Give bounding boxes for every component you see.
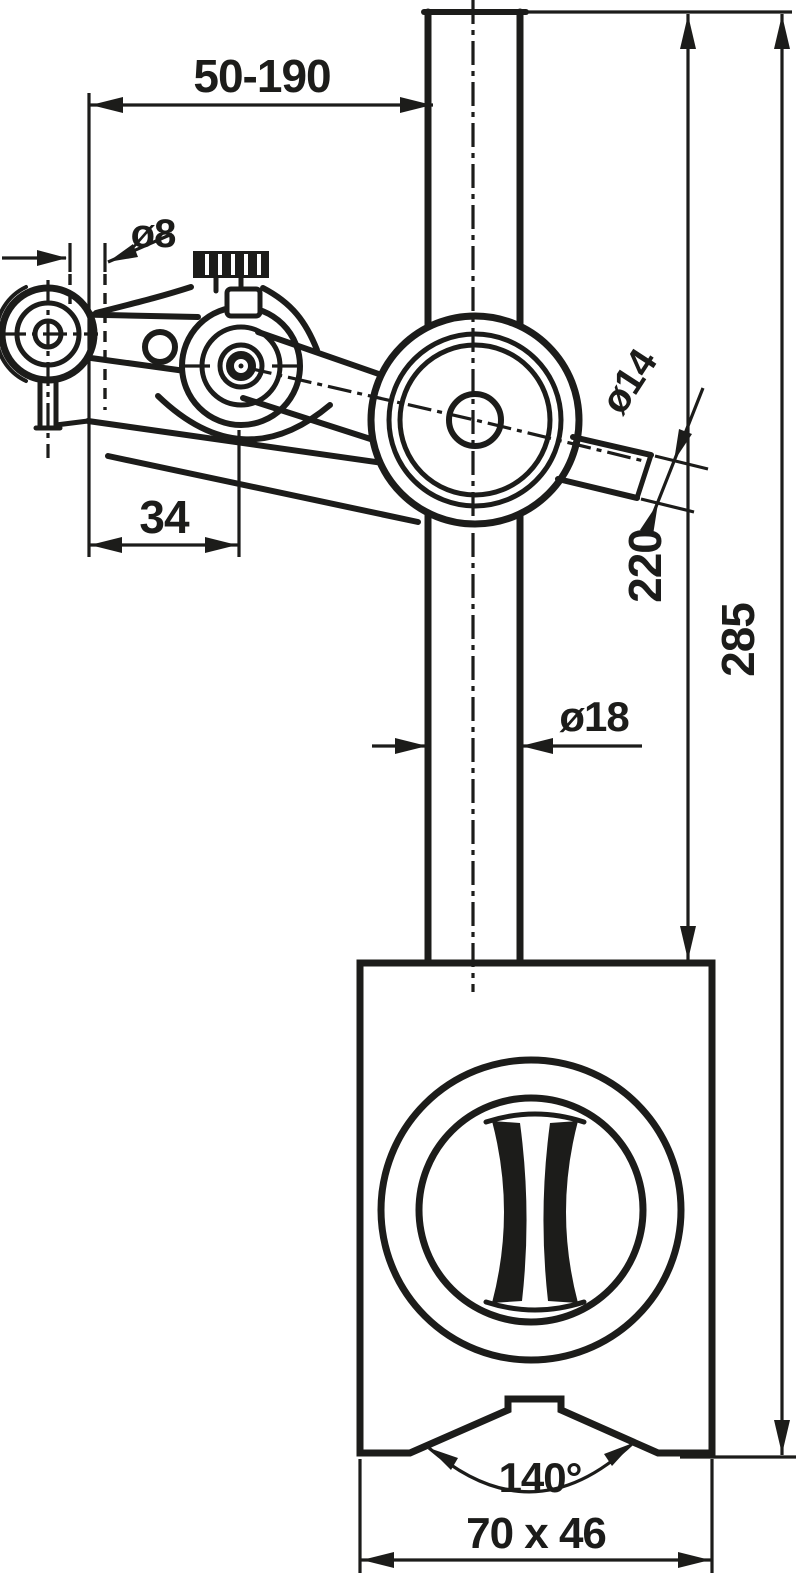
arrowhead (521, 738, 553, 754)
knob-center-hole (449, 394, 501, 446)
knurl-slit (218, 254, 222, 275)
technical-drawing: 50-190 ø8 34 ø14 220 285 (0, 0, 800, 1573)
dim-bore-label: ø8 (131, 212, 176, 256)
switch-handle-right-bar (543, 1121, 578, 1303)
arm-assembly (0, 251, 418, 522)
arrowhead (395, 738, 427, 754)
arrowhead (680, 926, 696, 960)
dim-reach-label: 50-190 (193, 50, 330, 102)
base-outline (360, 963, 712, 1453)
switch-handle-bottom-arc (486, 1302, 584, 1310)
arrowhead (678, 1552, 710, 1568)
knurl-slit (231, 254, 235, 275)
clamp-lever-joint (56, 421, 88, 425)
dim-base-size-label: 70 x 46 (466, 1509, 606, 1558)
arrowhead (774, 15, 790, 49)
switch-handle-left-bar (492, 1121, 527, 1303)
arrowhead (774, 1420, 790, 1454)
dim-vee-angle-label: 140° (499, 1454, 582, 1501)
dim-arm-diameter-label: ø14 (593, 341, 667, 422)
arrowhead (205, 537, 237, 553)
dimension-arm-diameter: ø14 (593, 341, 708, 535)
arrowhead (91, 97, 123, 113)
knurl-slit (205, 254, 209, 275)
thumb-nut (193, 251, 269, 316)
switch-outer-circle (381, 1060, 681, 1360)
centerlines (2, 0, 648, 992)
switch-inner-circle (419, 1098, 643, 1322)
pivot-center-dot (239, 364, 244, 369)
housing-curve-left (96, 287, 191, 313)
knurl-slit (257, 254, 261, 275)
link-plate-hole (145, 332, 175, 362)
dimension-pivot-offset: 34 (89, 430, 239, 557)
dim-total-height-label: 285 (712, 603, 764, 677)
switch-handle (486, 1114, 584, 1310)
thumb-nut-clevis (227, 289, 260, 316)
stub-bottom-edge (558, 479, 637, 498)
dim-offset-label: 34 (139, 491, 190, 543)
dim-rod-diameter-label: ø18 (559, 693, 629, 740)
dim-rod-length-label: 220 (619, 529, 671, 603)
extension-line (641, 499, 694, 512)
arrowhead (362, 1552, 394, 1568)
switch-handle-top-arc (486, 1114, 584, 1122)
dimension-vee-angle: 140° (429, 1443, 633, 1501)
magnetic-base (360, 963, 712, 1453)
technical-drawing-page: 50-190 ø8 34 ø14 220 285 (0, 0, 800, 1573)
knurl-slit (244, 254, 248, 275)
dimension-rod-diameter: ø18 (372, 693, 642, 754)
locking-knob (371, 316, 579, 524)
arrowhead (90, 537, 122, 553)
arrowhead (37, 250, 67, 266)
arrowhead (680, 15, 696, 49)
extension-line (655, 456, 708, 469)
